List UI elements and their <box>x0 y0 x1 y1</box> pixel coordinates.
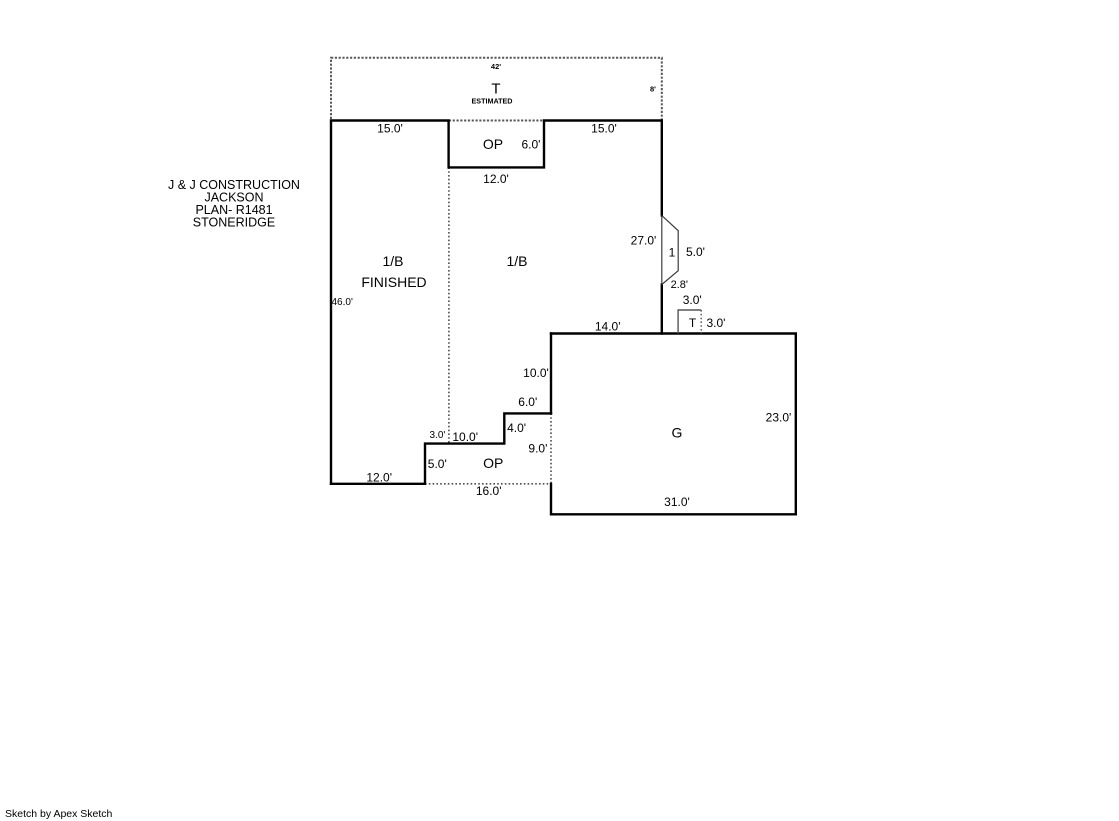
svg-text:T: T <box>491 81 500 98</box>
svg-text:ESTIMATED: ESTIMATED <box>472 97 513 106</box>
svg-text:T: T <box>689 316 697 330</box>
svg-text:14.0': 14.0' <box>595 320 621 334</box>
svg-text:6.0': 6.0' <box>518 395 537 409</box>
svg-text:5.0': 5.0' <box>686 245 705 259</box>
svg-text:15.0': 15.0' <box>377 122 403 136</box>
svg-text:31.0': 31.0' <box>664 495 690 509</box>
svg-text:27.0': 27.0' <box>631 234 657 248</box>
svg-text:9.0': 9.0' <box>528 441 547 455</box>
svg-text:2.8': 2.8' <box>671 279 688 291</box>
svg-text:12.0': 12.0' <box>483 172 509 186</box>
svg-text:3.0': 3.0' <box>683 293 702 307</box>
svg-text:1: 1 <box>669 246 676 260</box>
svg-text:STONERIDGE: STONERIDGE <box>193 216 275 230</box>
svg-text:12.0': 12.0' <box>366 470 392 484</box>
svg-text:Sketch by Apex Sketch: Sketch by Apex Sketch <box>5 808 113 820</box>
svg-text:3.0': 3.0' <box>429 430 445 441</box>
svg-text:8': 8' <box>650 85 656 94</box>
svg-text:G: G <box>672 425 683 441</box>
svg-text:42': 42' <box>491 62 501 71</box>
svg-text:FINISHED: FINISHED <box>361 274 426 290</box>
svg-text:10.0': 10.0' <box>523 366 549 380</box>
svg-text:15.0': 15.0' <box>591 122 617 136</box>
svg-text:OP: OP <box>483 136 503 152</box>
svg-text:4.0': 4.0' <box>507 421 526 435</box>
svg-text:1/B: 1/B <box>382 253 403 269</box>
svg-text:3.0': 3.0' <box>707 316 726 330</box>
svg-text:6.0': 6.0' <box>522 138 541 152</box>
svg-text:46.0': 46.0' <box>332 297 353 308</box>
svg-text:1/B: 1/B <box>506 253 527 269</box>
svg-text:23.0': 23.0' <box>766 411 792 425</box>
svg-text:10.0': 10.0' <box>452 430 478 444</box>
svg-text:5.0': 5.0' <box>428 457 447 471</box>
svg-text:OP: OP <box>483 455 503 471</box>
svg-text:16.0': 16.0' <box>476 484 502 498</box>
